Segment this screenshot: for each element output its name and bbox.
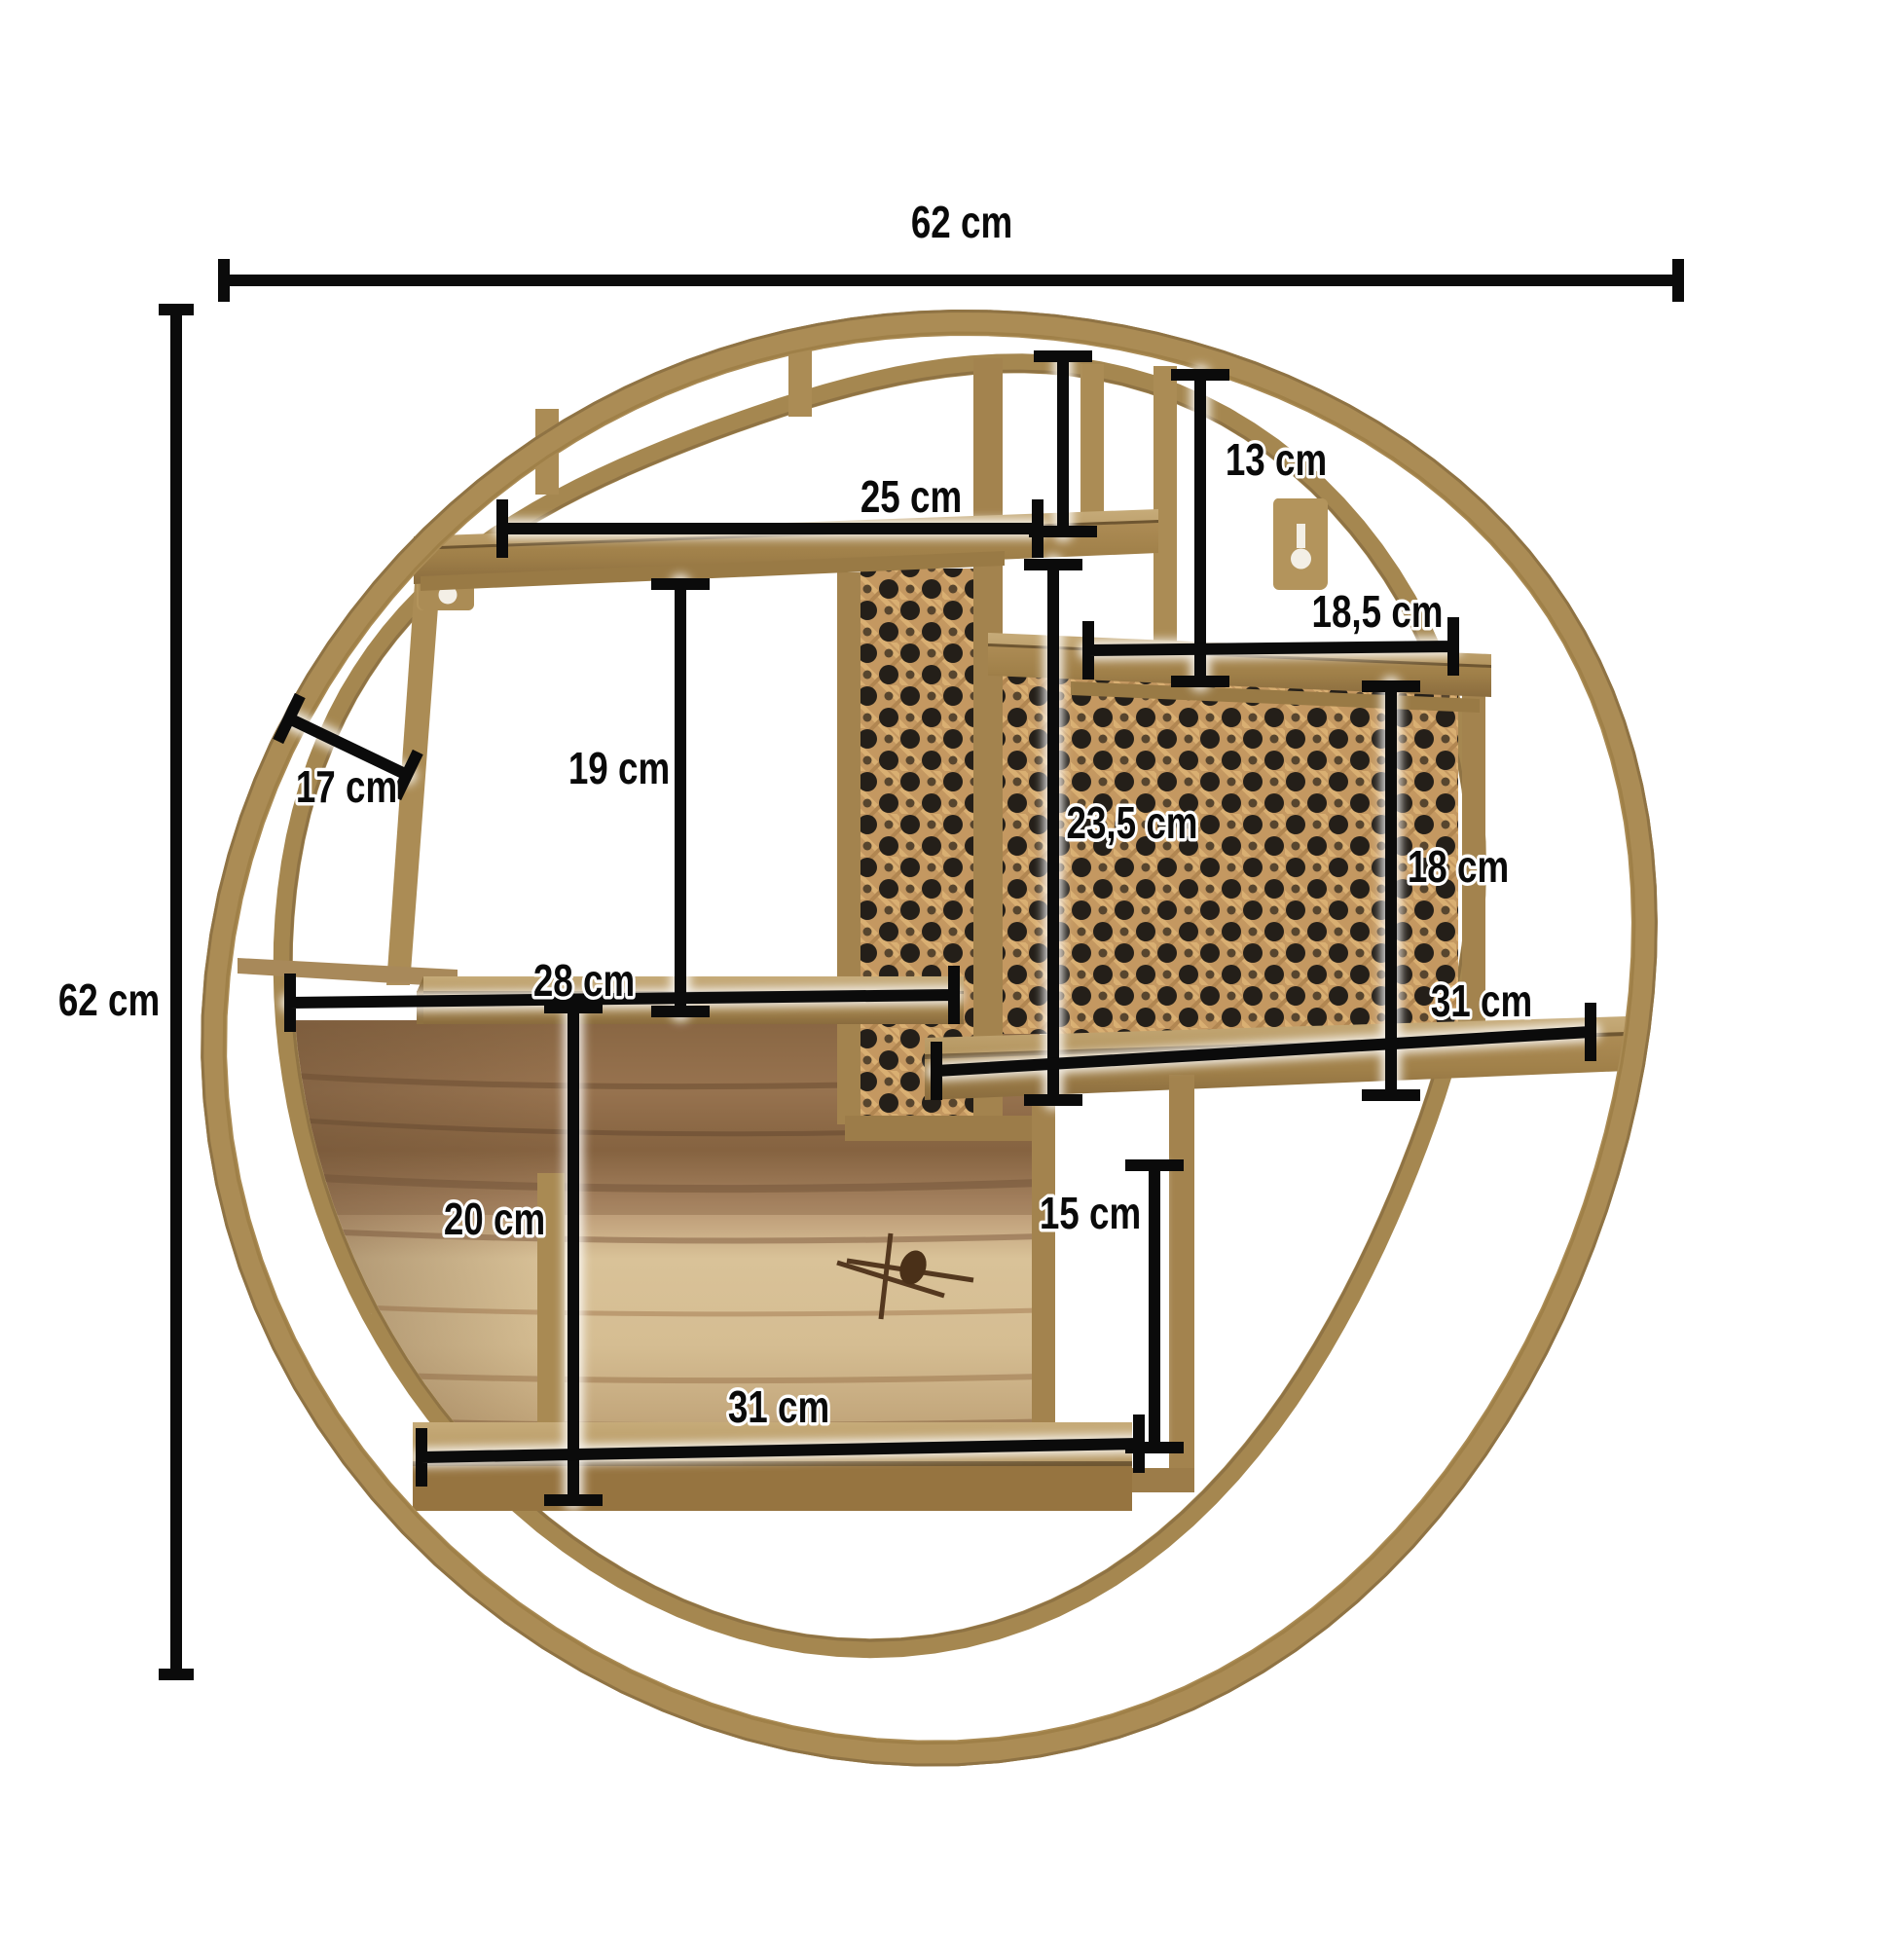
svg-text:19 cm: 19 cm [568, 743, 670, 793]
svg-text:23,5 cm: 23,5 cm [1066, 797, 1197, 848]
svg-text:28 cm: 28 cm [533, 955, 635, 1006]
svg-text:62 cm: 62 cm [911, 197, 1012, 247]
svg-text:20 cm: 20 cm [444, 1194, 545, 1244]
svg-text:13 cm: 13 cm [1226, 434, 1327, 485]
svg-text:15 cm: 15 cm [1040, 1188, 1141, 1238]
svg-text:17 cm: 17 cm [296, 761, 397, 812]
svg-text:18,5 cm: 18,5 cm [1311, 586, 1443, 637]
svg-text:18 cm: 18 cm [1408, 841, 1509, 892]
svg-text:25 cm: 25 cm [860, 471, 962, 522]
svg-text:31 cm: 31 cm [1431, 975, 1532, 1026]
svg-text:62 cm: 62 cm [58, 974, 160, 1025]
svg-text:31 cm: 31 cm [728, 1381, 829, 1432]
